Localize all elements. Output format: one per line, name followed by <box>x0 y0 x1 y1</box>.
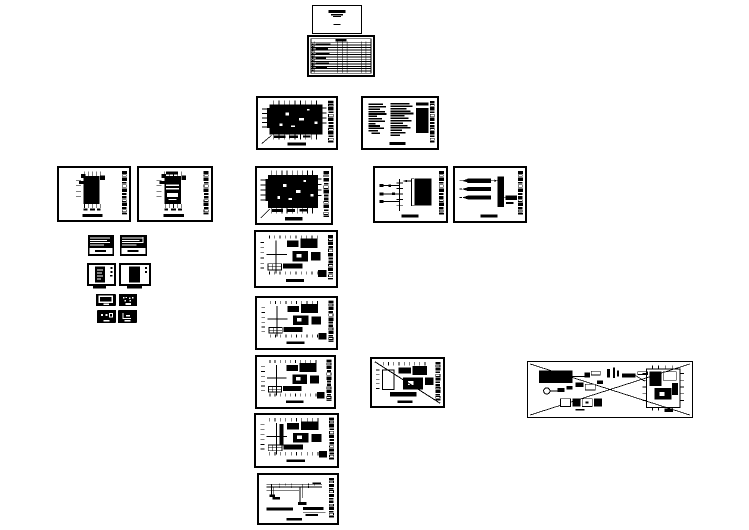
floor-plan-cross-1 <box>254 230 338 288</box>
legend-block-2 <box>119 263 151 289</box>
thumbnail-2-graphic <box>119 294 137 306</box>
system-schematic-graphic <box>259 475 337 523</box>
thumbnail-4-graphic <box>118 310 137 323</box>
floor-plan-cross-2 <box>255 296 338 350</box>
floor-plan-dense-1 <box>256 96 338 150</box>
floor-plan-dense-2 <box>255 166 333 225</box>
partial-plan-left-1-graphic <box>59 168 129 220</box>
mini-schedule-1 <box>88 235 114 256</box>
thumbnail-3 <box>97 310 116 323</box>
sheet-index-table <box>307 35 375 77</box>
thumbnail-1-graphic <box>96 294 116 306</box>
drawing-set-canvas <box>0 0 749 530</box>
partial-plan-left-2 <box>137 166 213 222</box>
floor-plan-crossed-out-graphic <box>372 359 443 406</box>
general-notes-sheet <box>361 96 439 150</box>
cover-sheet <box>312 5 362 34</box>
legend-block-1-graphic <box>87 263 116 289</box>
floor-plan-cross-4-graphic <box>256 415 337 466</box>
floor-plan-dense-1-graphic <box>258 98 336 148</box>
sheet-index-table-graphic <box>309 37 373 75</box>
riser-detail-2-graphic <box>455 168 525 221</box>
general-notes-graphic <box>363 98 437 148</box>
floor-plan-dense-2-graphic <box>257 168 331 223</box>
floor-plan-cross-2-graphic <box>257 298 336 348</box>
thumbnail-4 <box>118 310 137 323</box>
riser-detail-1 <box>373 166 448 223</box>
partial-plan-left-2-graphic <box>139 168 211 220</box>
legend-block-1 <box>87 263 116 289</box>
voided-layout-wide <box>527 361 693 418</box>
voided-layout-graphic <box>528 362 692 417</box>
thumbnail-3-graphic <box>97 310 116 323</box>
riser-detail-1-graphic <box>375 168 446 221</box>
partial-plan-left-1 <box>57 166 131 222</box>
mini-schedule-2 <box>120 235 147 256</box>
thumbnail-1 <box>96 294 116 306</box>
floor-plan-crossed-out <box>370 357 445 408</box>
mini-schedule-2-graphic <box>120 235 147 256</box>
cover-sheet-graphic <box>313 6 361 33</box>
floor-plan-cross-3-graphic <box>257 357 334 407</box>
thumbnail-2 <box>119 294 137 306</box>
system-schematic <box>257 473 339 525</box>
floor-plan-cross-4 <box>254 413 339 468</box>
mini-schedule-1-graphic <box>88 235 114 256</box>
floor-plan-cross-3 <box>255 355 336 409</box>
riser-detail-2 <box>453 166 527 223</box>
floor-plan-cross-1-graphic <box>256 232 336 286</box>
legend-block-2-graphic <box>119 263 151 289</box>
